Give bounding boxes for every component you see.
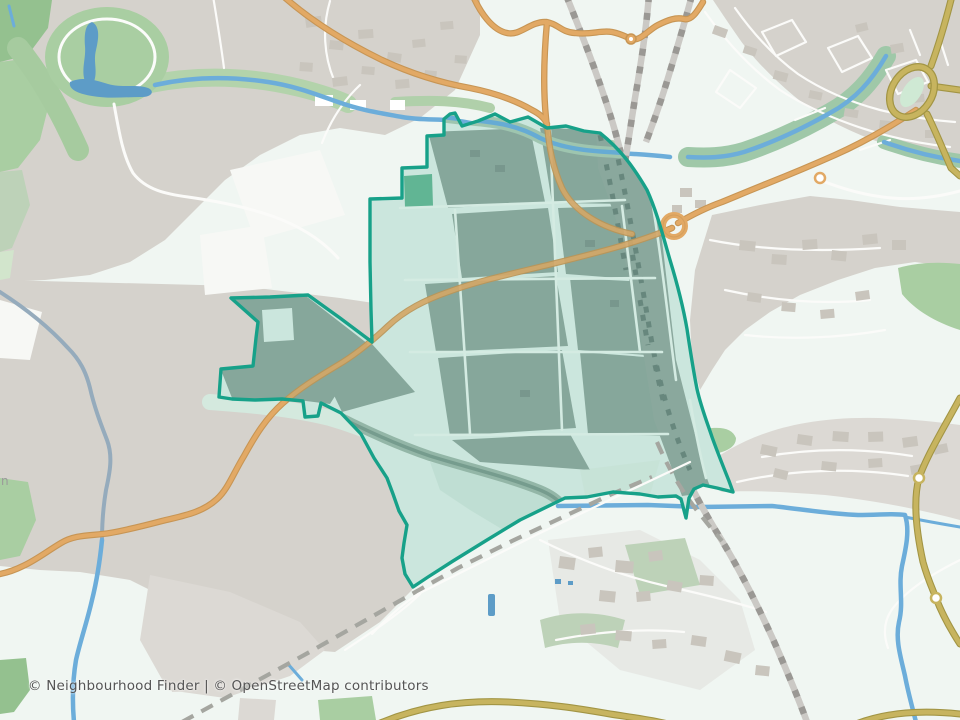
map-attribution: © Neighbourhood Finder | © OpenStreetMap… — [28, 678, 429, 694]
map-viewport[interactable]: n © Neighbourhood Finder | © OpenStreetM… — [0, 0, 960, 720]
clipped-place-label: n — [1, 474, 9, 488]
map-canvas[interactable] — [0, 0, 960, 720]
road-node — [931, 593, 941, 603]
railway-branch-east — [623, 0, 649, 175]
road-node — [914, 473, 924, 483]
junction-node — [815, 173, 825, 183]
